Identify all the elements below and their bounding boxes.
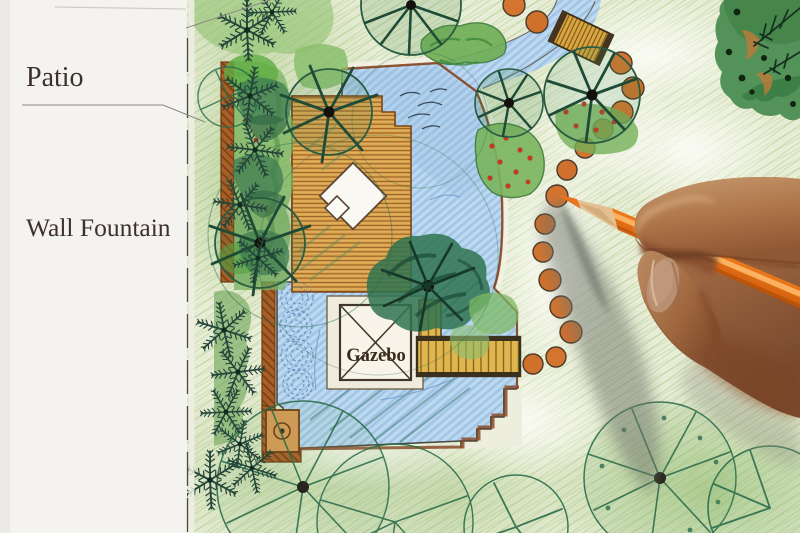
- svg-text:Patio: Patio: [26, 62, 84, 93]
- svg-text:Gazebo: Gazebo: [346, 346, 406, 366]
- svg-text:Wall Fountain: Wall Fountain: [26, 213, 171, 242]
